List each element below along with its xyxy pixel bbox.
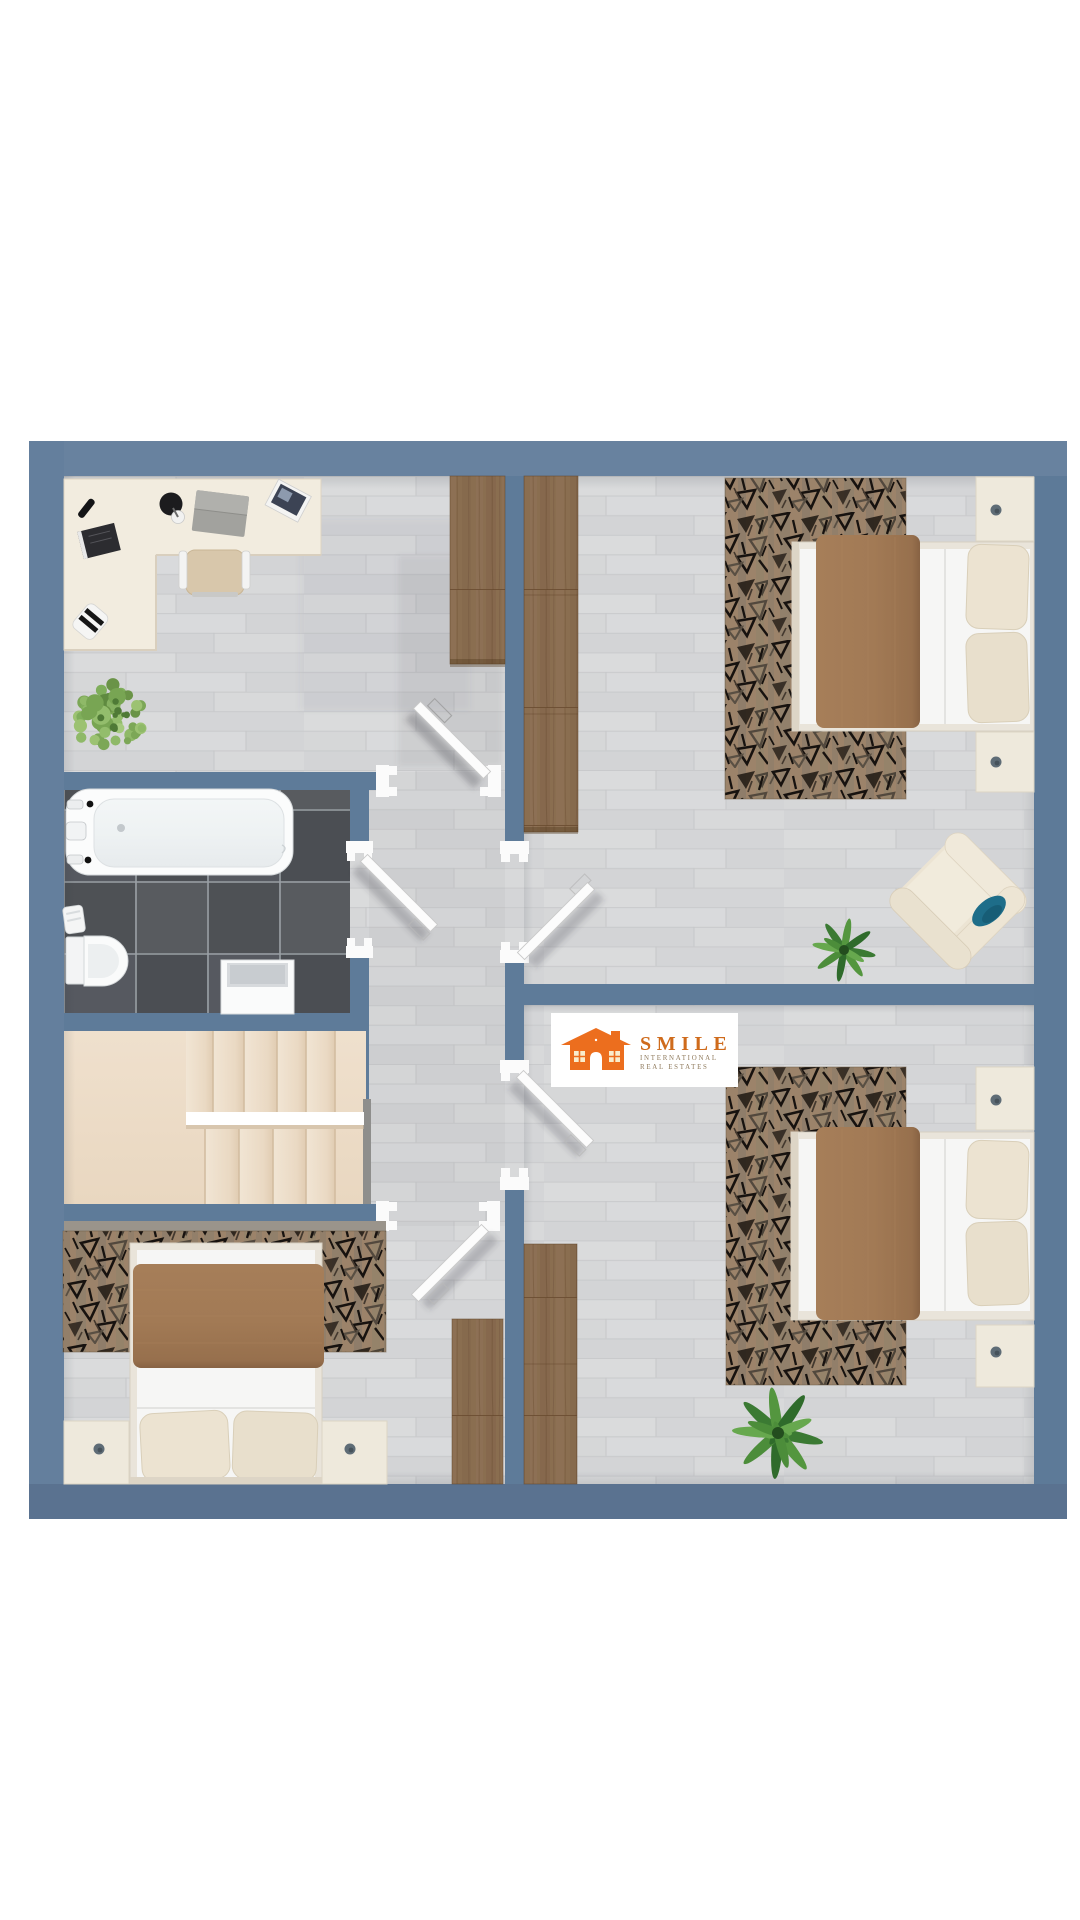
- svg-text:REAL ESTATES: REAL ESTATES: [640, 1064, 709, 1071]
- svg-text:INTERNATIONAL: INTERNATIONAL: [640, 1055, 718, 1062]
- svg-text:SMILE: SMILE: [640, 1033, 732, 1055]
